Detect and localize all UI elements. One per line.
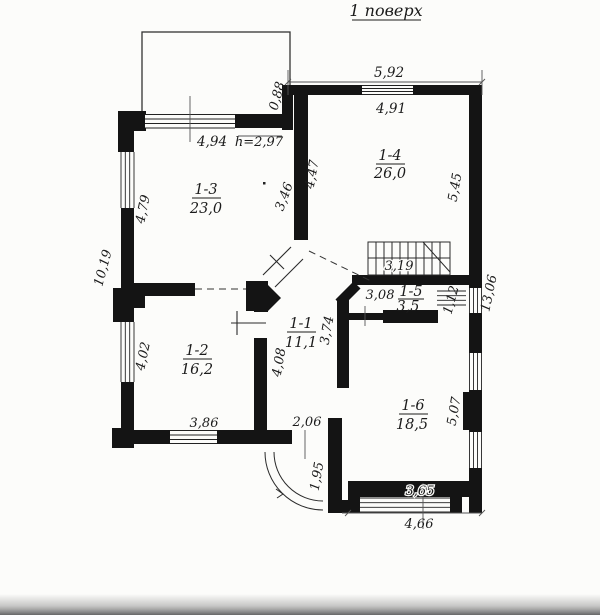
room5-id: 1-5 [399,284,422,300]
room2-id: 1-2 [185,343,208,359]
scan-artifact-band [0,594,600,615]
dim-room2-bottom: 3,86 [190,416,219,431]
room6-area: 18,5 [396,417,428,433]
wall-left-jamb [113,288,134,322]
room4-area: 26,0 [373,166,406,182]
wall-pier-bottom-right [450,481,462,513]
wall-pier-bottom-left [348,481,360,513]
dim-top-outer: 5,92 [374,65,404,81]
wall-hall-west-top [254,281,268,312]
dim-room3-top: 4,94 [196,134,227,150]
wall-bottom-hall-stub [263,430,292,444]
window-top-room4 [362,85,413,95]
room1-id: 1-1 [289,316,312,332]
wall-room5-south-a [340,313,383,320]
wall-southwest-room6 [328,418,342,513]
dim-ceiling-note: h=2,97 [235,135,284,150]
floor-plan-canvas: 1 поверх 5,92 4,91 0,88 4,94 h=2,97 4,47… [0,0,600,615]
dim-room5-top: 3,08 [366,288,395,303]
window-right-room6-upper [469,353,482,390]
room3-id: 1-3 [194,182,217,198]
dim-top-inner: 4,91 [375,101,406,117]
room1-area: 11,1 [285,335,317,351]
window-left-room2 [117,322,136,382]
floor-plan-sheet: 1 поверх 5,92 4,91 0,88 4,94 h=2,97 4,47… [0,0,600,615]
wall-hall-west-bottom [254,338,267,430]
wall-pier-small [133,296,145,308]
wall-right-pier [463,392,482,430]
dim-entry: 2,06 [292,415,322,430]
window-bottom-room2 [170,430,217,444]
room5-area: 3,5 [396,299,419,315]
dim-bottom-outer: 4,66 [404,517,434,532]
window-right-room6-lower [469,432,482,468]
room6-id: 1-6 [401,398,424,414]
wall-hall-east [337,298,349,388]
room4-id: 1-4 [378,148,401,164]
room2-area: 16,2 [181,362,213,378]
dim-room6-bottom: 3,65 [406,484,435,499]
window-left-room3 [117,152,136,208]
plan-title: 1 поверх [349,1,422,20]
scan-speck [263,182,266,185]
room3-area: 23,0 [189,201,222,217]
dim-stairs: 3,19 [385,259,414,274]
